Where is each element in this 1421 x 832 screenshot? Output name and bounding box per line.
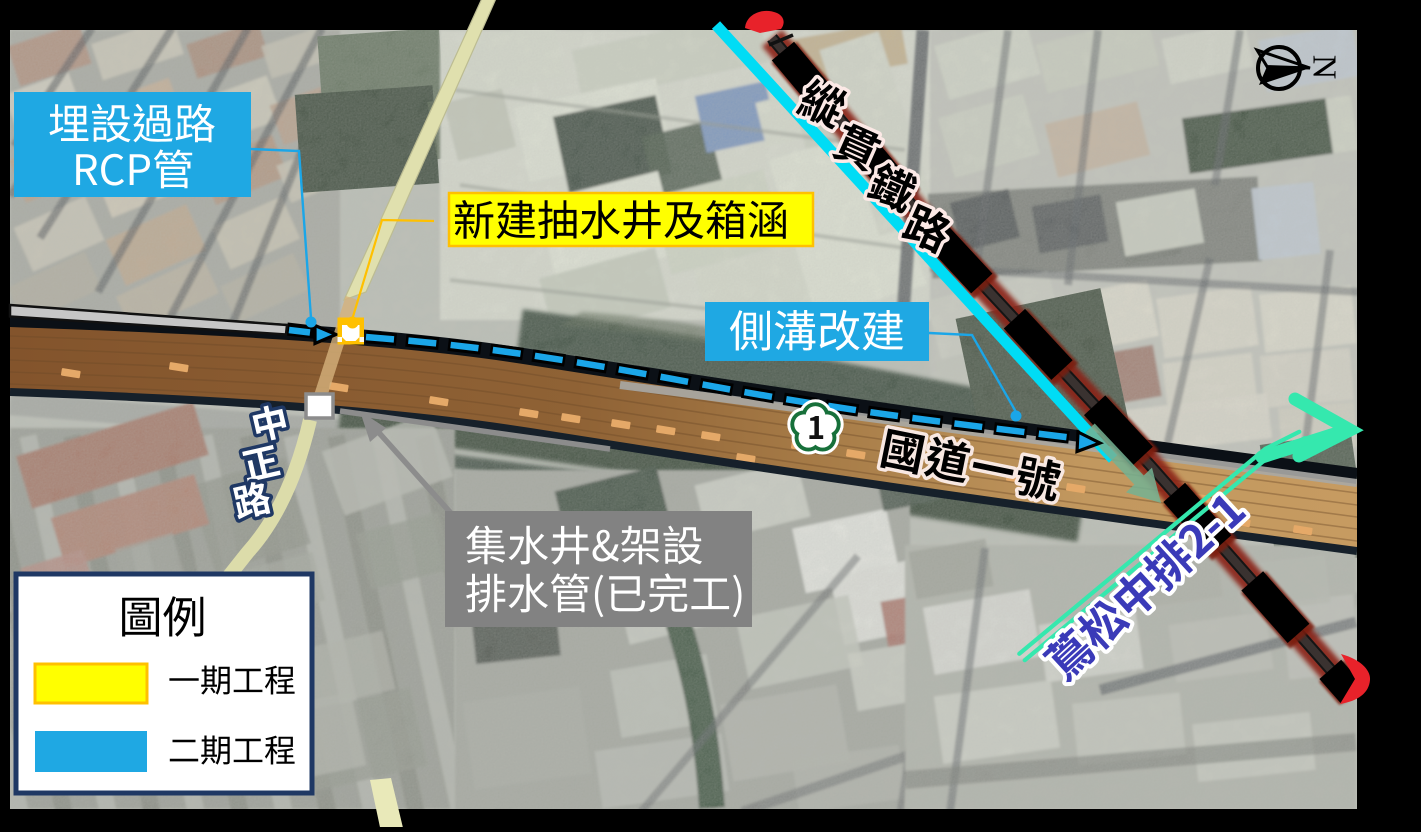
svg-text:N: N	[1306, 55, 1343, 80]
